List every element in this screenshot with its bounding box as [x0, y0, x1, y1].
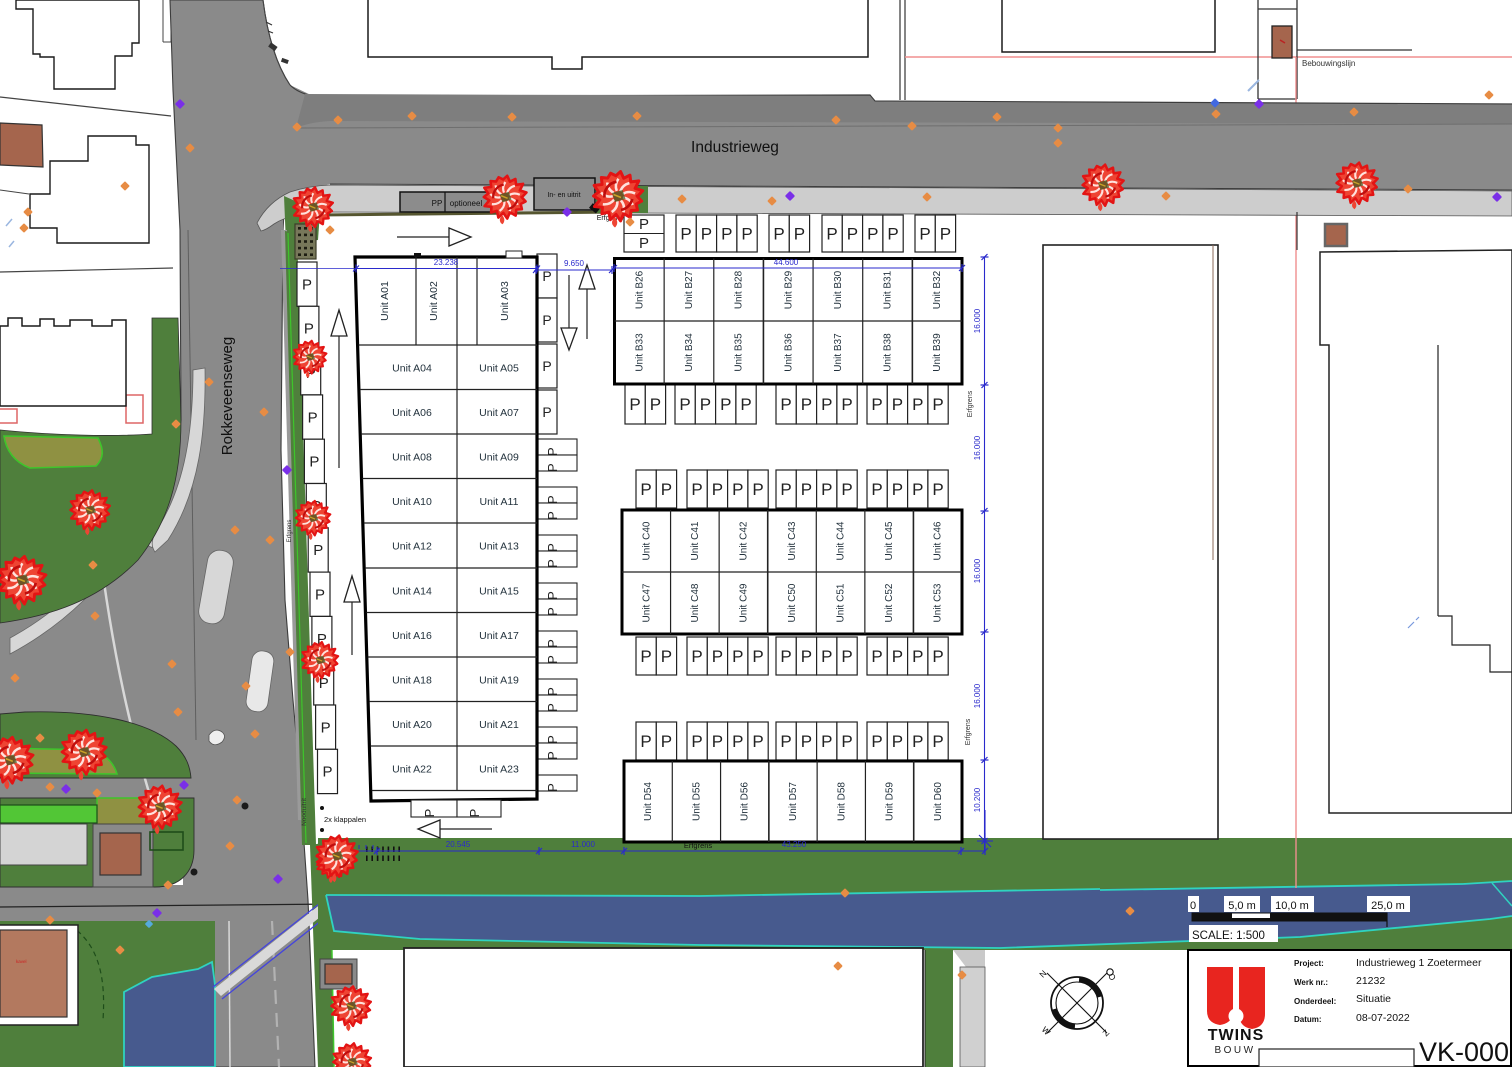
svg-text:Unit B39: Unit B39: [932, 333, 943, 372]
svg-text:Unit B30: Unit B30: [833, 270, 844, 309]
svg-text:P: P: [841, 732, 852, 751]
svg-text:Erfgrens: Erfgrens: [684, 841, 713, 850]
svg-text:P: P: [932, 395, 943, 414]
svg-text:P: P: [542, 312, 551, 328]
svg-text:P: P: [871, 480, 882, 499]
svg-text:Unit A16: Unit A16: [392, 630, 432, 642]
svg-text:P: P: [821, 480, 832, 499]
svg-text:10,0 m: 10,0 m: [1275, 900, 1309, 912]
svg-text:Unit B33: Unit B33: [634, 333, 645, 372]
svg-text:Unit A20: Unit A20: [392, 719, 432, 731]
svg-text:P: P: [773, 224, 784, 243]
svg-text:P: P: [752, 647, 763, 666]
svg-text:5,0 m: 5,0 m: [1228, 900, 1256, 912]
svg-text:P: P: [871, 395, 882, 414]
svg-text:P: P: [691, 732, 702, 751]
svg-text:Unit B38: Unit B38: [883, 333, 894, 372]
svg-text:Unit A14: Unit A14: [392, 585, 432, 597]
svg-text:Unit A23: Unit A23: [479, 763, 519, 775]
svg-text:16.000: 16.000: [973, 683, 982, 708]
svg-text:Unit B35: Unit B35: [734, 333, 745, 372]
svg-text:16.000: 16.000: [973, 558, 982, 583]
svg-text:P: P: [732, 480, 743, 499]
svg-text:Unit A05: Unit A05: [479, 362, 519, 374]
svg-text:BOUW: BOUW: [1214, 1045, 1255, 1056]
svg-text:Industrieweg: Industrieweg: [691, 139, 779, 156]
svg-text:P: P: [712, 732, 723, 751]
svg-text:Onderdeel:: Onderdeel:: [1294, 997, 1336, 1006]
svg-text:10.200: 10.200: [973, 787, 982, 812]
svg-text:P: P: [801, 480, 812, 499]
svg-text:Unit C40: Unit C40: [641, 521, 652, 560]
svg-text:P: P: [467, 809, 482, 818]
svg-text:P: P: [841, 395, 852, 414]
svg-text:P: P: [542, 358, 551, 374]
svg-text:P: P: [892, 732, 903, 751]
svg-text:23.238: 23.238: [434, 258, 459, 267]
svg-text:P: P: [542, 404, 551, 420]
svg-text:Unit C42: Unit C42: [738, 521, 749, 560]
svg-text:P: P: [639, 216, 649, 233]
svg-text:Bebouwingslijn: Bebouwingslijn: [1302, 59, 1355, 68]
svg-text:2x klappalen: 2x klappalen: [324, 815, 366, 824]
svg-text:P: P: [545, 607, 560, 616]
svg-text:P: P: [545, 511, 560, 520]
svg-text:Unit D54: Unit D54: [643, 782, 654, 821]
svg-text:P: P: [679, 395, 690, 414]
svg-text:Unit B26: Unit B26: [634, 270, 645, 309]
svg-text:P: P: [801, 647, 812, 666]
svg-text:P: P: [302, 276, 312, 293]
svg-text:Werk nr.:: Werk nr.:: [1294, 978, 1328, 987]
svg-text:P: P: [847, 224, 858, 243]
svg-text:P: P: [826, 224, 837, 243]
svg-text:Unit D58: Unit D58: [836, 782, 847, 821]
svg-text:P: P: [661, 480, 672, 499]
svg-text:P: P: [712, 480, 723, 499]
svg-text:Unit B29: Unit B29: [783, 270, 794, 309]
svg-text:P: P: [661, 647, 672, 666]
svg-text:P: P: [640, 732, 651, 751]
svg-text:P: P: [912, 480, 923, 499]
svg-text:PP: PP: [432, 199, 443, 208]
svg-text:Unit C41: Unit C41: [690, 521, 701, 560]
svg-text:P: P: [821, 395, 832, 414]
svg-text:Unit A09: Unit A09: [479, 451, 519, 463]
svg-text:44.600: 44.600: [774, 258, 799, 267]
svg-text:Industrieweg 1 Zoetermeer: Industrieweg 1 Zoetermeer: [1356, 957, 1482, 969]
svg-text:P: P: [720, 395, 731, 414]
svg-text:P: P: [887, 224, 898, 243]
svg-text:Unit C48: Unit C48: [690, 583, 701, 622]
svg-text:Unit C46: Unit C46: [933, 521, 944, 560]
svg-text:16.000: 16.000: [973, 308, 982, 333]
svg-text:VK-000: VK-000: [1419, 1037, 1509, 1067]
svg-text:P: P: [919, 224, 930, 243]
svg-text:Unit A08: Unit A08: [392, 451, 432, 463]
svg-text:P: P: [721, 224, 732, 243]
svg-text:Nooduitrit: Nooduitrit: [301, 798, 308, 826]
svg-text:P: P: [545, 703, 560, 712]
svg-text:P: P: [892, 480, 903, 499]
svg-text:P: P: [912, 647, 923, 666]
svg-text:P: P: [308, 409, 318, 426]
svg-text:43.250: 43.250: [782, 840, 807, 849]
svg-text:P: P: [304, 321, 314, 338]
svg-text:Situatie: Situatie: [1356, 993, 1391, 1005]
svg-text:Unit A19: Unit A19: [479, 674, 519, 686]
svg-text:P: P: [313, 542, 323, 559]
svg-text:P: P: [867, 224, 878, 243]
svg-text:Unit A07: Unit A07: [479, 407, 519, 419]
svg-text:Unit C52: Unit C52: [884, 583, 895, 622]
svg-text:Unit C44: Unit C44: [836, 521, 847, 560]
svg-text:P: P: [545, 655, 560, 664]
svg-text:P: P: [841, 480, 852, 499]
svg-text:P: P: [545, 559, 560, 568]
svg-text:P: P: [640, 647, 651, 666]
svg-text:Unit A10: Unit A10: [392, 496, 432, 508]
svg-text:P: P: [640, 480, 651, 499]
svg-text:P: P: [321, 719, 331, 736]
svg-text:P: P: [545, 783, 560, 792]
svg-text:Unit C50: Unit C50: [787, 583, 798, 622]
svg-text:Unit C53: Unit C53: [933, 583, 944, 622]
svg-text:Unit A01: Unit A01: [379, 281, 391, 321]
svg-text:P: P: [712, 647, 723, 666]
svg-text:P: P: [732, 647, 743, 666]
svg-text:Unit D57: Unit D57: [788, 782, 799, 821]
svg-text:In- en uitrit: In- en uitrit: [547, 192, 580, 199]
svg-text:Unit A02: Unit A02: [428, 281, 440, 321]
svg-text:P: P: [801, 395, 812, 414]
svg-text:P: P: [701, 224, 712, 243]
svg-text:P: P: [871, 647, 882, 666]
svg-text:25,0 m: 25,0 m: [1371, 900, 1405, 912]
svg-text:P: P: [639, 235, 649, 252]
svg-text:P: P: [650, 395, 661, 414]
svg-text:P: P: [752, 480, 763, 499]
svg-text:Unit A21: Unit A21: [479, 719, 519, 731]
svg-text:Unit A17: Unit A17: [479, 630, 519, 642]
svg-text:11.000: 11.000: [571, 840, 595, 849]
svg-text:P: P: [545, 751, 560, 760]
svg-text:Project:: Project:: [1294, 959, 1324, 968]
svg-text:0: 0: [1190, 900, 1196, 912]
svg-text:Unit C49: Unit C49: [738, 583, 749, 622]
svg-text:P: P: [780, 480, 791, 499]
svg-text:optioneel: optioneel: [450, 199, 483, 208]
svg-text:Unit D60: Unit D60: [933, 782, 944, 821]
svg-text:Unit B32: Unit B32: [932, 270, 943, 309]
svg-text:Unit B28: Unit B28: [734, 270, 745, 309]
svg-text:P: P: [309, 454, 319, 471]
svg-text:Unit C47: Unit C47: [641, 583, 652, 622]
svg-text:Unit A15: Unit A15: [479, 585, 519, 597]
svg-text:P: P: [932, 647, 943, 666]
svg-text:P: P: [794, 224, 805, 243]
svg-text:Unit C45: Unit C45: [884, 521, 895, 560]
svg-text:Unit C43: Unit C43: [787, 521, 798, 560]
svg-text:Unit A22: Unit A22: [392, 763, 432, 775]
svg-text:P: P: [821, 732, 832, 751]
svg-text:Unit B27: Unit B27: [684, 270, 695, 309]
svg-text:Unit C51: Unit C51: [836, 583, 847, 622]
svg-text:P: P: [752, 732, 763, 751]
svg-text:P: P: [892, 395, 903, 414]
svg-text:Unit B36: Unit B36: [783, 333, 794, 372]
svg-text:P: P: [700, 395, 711, 414]
svg-text:P: P: [892, 647, 903, 666]
svg-text:Datum:: Datum:: [1294, 1015, 1322, 1024]
svg-text:08-07-2022: 08-07-2022: [1356, 1012, 1410, 1024]
svg-text:kavel: kavel: [16, 959, 27, 964]
svg-text:P: P: [691, 647, 702, 666]
svg-text:P: P: [732, 732, 743, 751]
svg-text:P: P: [912, 732, 923, 751]
svg-text:Erfgrens: Erfgrens: [967, 390, 974, 417]
svg-text:P: P: [545, 463, 560, 472]
svg-text:Unit B31: Unit B31: [883, 270, 894, 309]
svg-text:21232: 21232: [1356, 975, 1385, 987]
svg-text:Unit A12: Unit A12: [392, 540, 432, 552]
svg-text:P: P: [691, 480, 702, 499]
svg-text:20.545: 20.545: [446, 840, 471, 849]
svg-text:P: P: [912, 395, 923, 414]
svg-text:P: P: [315, 587, 325, 604]
svg-text:Unit A06: Unit A06: [392, 407, 432, 419]
svg-text:P: P: [932, 480, 943, 499]
svg-text:Unit A18: Unit A18: [392, 674, 432, 686]
svg-text:9.650: 9.650: [564, 259, 585, 268]
svg-text:P: P: [871, 732, 882, 751]
svg-text:P: P: [801, 732, 812, 751]
svg-text:P: P: [780, 647, 791, 666]
svg-text:P: P: [629, 395, 640, 414]
svg-text:SCALE: 1:500: SCALE: 1:500: [1192, 930, 1265, 942]
svg-text:P: P: [932, 732, 943, 751]
svg-text:Unit B37: Unit B37: [833, 333, 844, 372]
svg-text:Unit A04: Unit A04: [392, 362, 432, 374]
svg-text:16.000: 16.000: [973, 435, 982, 460]
svg-text:Unit D56: Unit D56: [740, 782, 751, 821]
svg-text:Unit A03: Unit A03: [499, 281, 511, 321]
svg-text:TWINS: TWINS: [1208, 1027, 1265, 1044]
svg-text:P: P: [661, 732, 672, 751]
svg-text:Erfgrens: Erfgrens: [287, 520, 293, 543]
svg-text:Unit D55: Unit D55: [691, 782, 702, 821]
svg-text:P: P: [780, 395, 791, 414]
svg-text:P: P: [940, 224, 951, 243]
svg-text:Unit D59: Unit D59: [885, 782, 896, 821]
svg-text:Unit B34: Unit B34: [684, 333, 695, 372]
svg-text:Unit A13: Unit A13: [479, 540, 519, 552]
svg-text:P: P: [322, 764, 332, 781]
svg-text:P: P: [780, 732, 791, 751]
svg-text:Rokkeveenseweg: Rokkeveenseweg: [219, 337, 236, 455]
svg-text:P: P: [841, 647, 852, 666]
svg-text:P: P: [821, 647, 832, 666]
svg-text:Unit A11: Unit A11: [480, 496, 519, 508]
svg-text:P: P: [422, 809, 437, 818]
svg-text:P: P: [741, 224, 752, 243]
svg-text:P: P: [680, 224, 691, 243]
svg-text:P: P: [740, 395, 751, 414]
svg-text:Erfgrens: Erfgrens: [965, 718, 972, 745]
